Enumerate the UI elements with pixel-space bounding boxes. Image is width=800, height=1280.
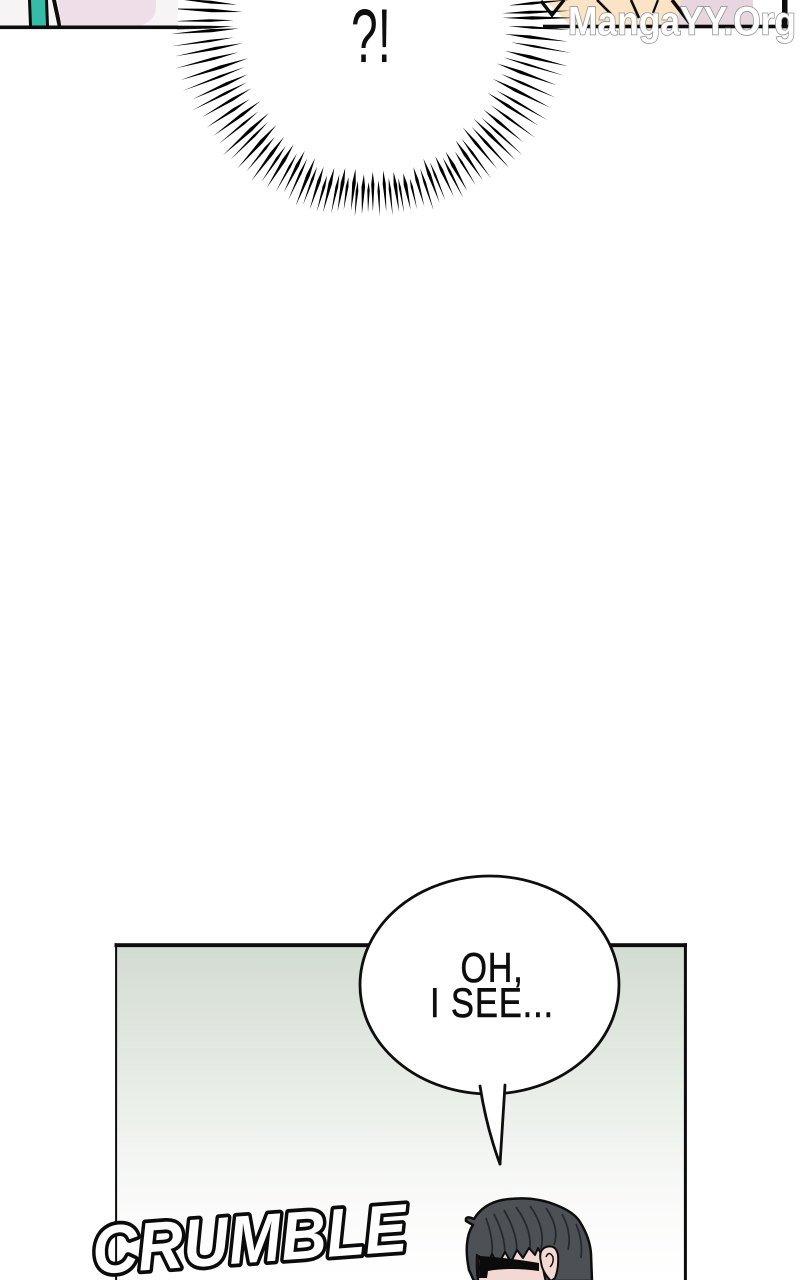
svg-text:?!: ?! bbox=[351, 0, 391, 79]
svg-text:I SEE...: I SEE... bbox=[430, 979, 554, 1026]
svg-text:MangaYY.Org: MangaYY.Org bbox=[568, 0, 796, 44]
